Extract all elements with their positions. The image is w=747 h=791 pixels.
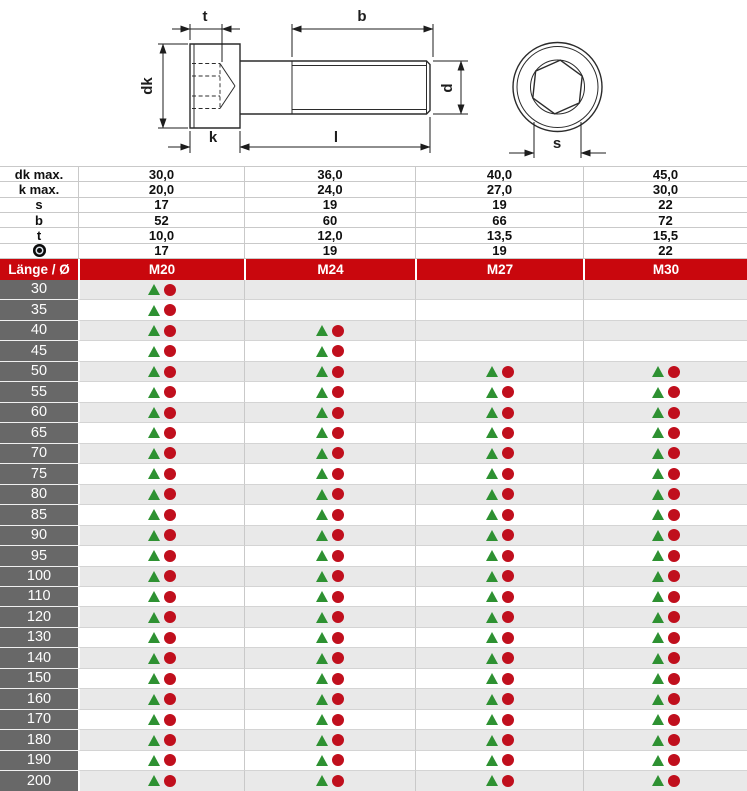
dot-marker-icon xyxy=(668,509,680,521)
length-label: 55 xyxy=(0,382,78,402)
availability-cell xyxy=(244,607,415,627)
triangle-marker-icon xyxy=(148,735,160,746)
catalog-page: t b dk k l d s dk max.30,036,040,045,0k … xyxy=(0,0,747,791)
availability-cell xyxy=(244,464,415,484)
triangle-marker-icon xyxy=(486,407,498,418)
triangle-marker-icon xyxy=(316,366,328,377)
availability-cell xyxy=(244,444,415,464)
triangle-marker-icon xyxy=(148,694,160,705)
availability-cell xyxy=(78,587,244,607)
dot-marker-icon xyxy=(502,591,514,603)
availability-cell xyxy=(415,628,583,648)
dot-marker-icon xyxy=(668,754,680,766)
availability-cell xyxy=(583,771,747,791)
dot-marker-icon xyxy=(332,673,344,685)
triangle-marker-icon xyxy=(486,468,498,479)
spec-value: 30,0 xyxy=(583,182,747,196)
availability-cell xyxy=(583,710,747,730)
triangle-marker-icon xyxy=(652,448,664,459)
availability-markers xyxy=(652,468,680,480)
triangle-marker-icon xyxy=(652,612,664,623)
triangle-marker-icon xyxy=(486,632,498,643)
table-row: 110 xyxy=(0,587,747,607)
spec-value: 15,5 xyxy=(583,228,747,242)
availability-cell xyxy=(78,730,244,750)
availability-cell xyxy=(244,628,415,648)
availability-markers xyxy=(316,488,344,500)
triangle-marker-icon xyxy=(652,632,664,643)
availability-cell xyxy=(78,526,244,546)
availability-cell xyxy=(244,710,415,730)
spec-table: dk max.30,036,040,045,0k max.20,024,027,… xyxy=(0,166,747,259)
dot-marker-icon xyxy=(332,529,344,541)
dot-marker-icon xyxy=(668,570,680,582)
triangle-marker-icon xyxy=(148,571,160,582)
triangle-marker-icon xyxy=(148,407,160,418)
triangle-marker-icon xyxy=(148,305,160,316)
dot-marker-icon xyxy=(164,754,176,766)
triangle-marker-icon xyxy=(486,550,498,561)
dot-marker-icon xyxy=(502,734,514,746)
dot-marker-icon xyxy=(332,345,344,357)
length-label: 85 xyxy=(0,505,78,525)
dot-marker-icon xyxy=(164,345,176,357)
triangle-marker-icon xyxy=(486,366,498,377)
availability-cell xyxy=(244,321,415,341)
availability-cell xyxy=(583,607,747,627)
spec-value: 60 xyxy=(244,213,415,227)
size-column-header: M24 xyxy=(244,259,415,280)
availability-markers xyxy=(316,734,344,746)
availability-markers xyxy=(486,570,514,582)
availability-markers xyxy=(148,734,176,746)
spec-row: k max.20,024,027,030,0 xyxy=(0,181,747,196)
triangle-marker-icon xyxy=(148,489,160,500)
availability-cell xyxy=(583,464,747,484)
table-row: 75 xyxy=(0,464,747,484)
availability-cell xyxy=(244,485,415,505)
dot-marker-icon xyxy=(502,673,514,685)
table-row: 60 xyxy=(0,403,747,423)
triangle-marker-icon xyxy=(316,673,328,684)
availability-markers xyxy=(486,611,514,623)
spec-row: s17191922 xyxy=(0,197,747,212)
availability-markers xyxy=(652,611,680,623)
availability-cell xyxy=(78,648,244,668)
spec-value: 52 xyxy=(78,213,244,227)
length-label: 80 xyxy=(0,485,78,505)
availability-cell xyxy=(78,280,244,300)
triangle-marker-icon xyxy=(486,448,498,459)
availability-cell xyxy=(583,587,747,607)
triangle-marker-icon xyxy=(652,775,664,786)
dot-marker-icon xyxy=(332,427,344,439)
table-row: 65 xyxy=(0,423,747,443)
triangle-marker-icon xyxy=(652,366,664,377)
availability-cell xyxy=(78,382,244,402)
availability-markers xyxy=(316,386,344,398)
triangle-marker-icon xyxy=(652,387,664,398)
availability-cell xyxy=(583,628,747,648)
dot-marker-icon xyxy=(502,386,514,398)
length-label: 30 xyxy=(0,280,78,300)
availability-markers xyxy=(148,673,176,685)
spec-value: 24,0 xyxy=(244,182,415,196)
triangle-marker-icon xyxy=(316,325,328,336)
triangle-marker-icon xyxy=(486,755,498,766)
availability-cell xyxy=(244,300,415,320)
triangle-marker-icon xyxy=(652,735,664,746)
availability-cell xyxy=(583,648,747,668)
availability-markers xyxy=(316,775,344,787)
availability-cell xyxy=(78,341,244,361)
availability-cell xyxy=(78,300,244,320)
availability-markers xyxy=(316,529,344,541)
availability-cell xyxy=(244,751,415,771)
table-row: 140 xyxy=(0,648,747,668)
availability-cell xyxy=(415,464,583,484)
availability-markers xyxy=(316,427,344,439)
spec-row: dk max.30,036,040,045,0 xyxy=(0,166,747,181)
size-column-header: M20 xyxy=(78,259,244,280)
triangle-marker-icon xyxy=(316,407,328,418)
availability-cell xyxy=(78,485,244,505)
triangle-marker-icon xyxy=(486,612,498,623)
dot-marker-icon xyxy=(332,325,344,337)
availability-cell xyxy=(244,423,415,443)
availability-markers xyxy=(148,775,176,787)
availability-cell xyxy=(415,751,583,771)
triangle-marker-icon xyxy=(486,775,498,786)
dot-marker-icon xyxy=(332,734,344,746)
spec-row-label xyxy=(0,244,78,258)
dot-marker-icon xyxy=(668,427,680,439)
triangle-marker-icon xyxy=(652,468,664,479)
dot-marker-icon xyxy=(164,673,176,685)
availability-cell xyxy=(244,587,415,607)
availability-cell xyxy=(415,648,583,668)
availability-cell xyxy=(244,382,415,402)
length-label: 50 xyxy=(0,362,78,382)
availability-markers xyxy=(486,652,514,664)
availability-cell xyxy=(78,751,244,771)
table-row: 90 xyxy=(0,526,747,546)
availability-markers xyxy=(148,447,176,459)
triangle-marker-icon xyxy=(652,427,664,438)
availability-markers xyxy=(486,734,514,746)
table-row: 160 xyxy=(0,689,747,709)
triangle-marker-icon xyxy=(652,550,664,561)
availability-cell xyxy=(78,771,244,791)
spec-value: 45,0 xyxy=(583,167,747,181)
availability-markers xyxy=(652,550,680,562)
triangle-marker-icon xyxy=(652,694,664,705)
size-column-header: M30 xyxy=(583,259,747,280)
dot-marker-icon xyxy=(502,550,514,562)
availability-cell xyxy=(415,526,583,546)
dot-marker-icon xyxy=(502,407,514,419)
length-label: 190 xyxy=(0,751,78,771)
table-row: 170 xyxy=(0,710,747,730)
triangle-marker-icon xyxy=(486,427,498,438)
triangle-marker-icon xyxy=(316,427,328,438)
availability-cell xyxy=(244,689,415,709)
triangle-marker-icon xyxy=(486,735,498,746)
availability-cell xyxy=(78,505,244,525)
length-label: 110 xyxy=(0,587,78,607)
length-label: 70 xyxy=(0,444,78,464)
dim-label-k: k xyxy=(209,129,218,146)
availability-markers xyxy=(652,386,680,398)
end-view xyxy=(513,43,602,132)
availability-cell xyxy=(244,280,415,300)
availability-markers xyxy=(148,550,176,562)
triangle-marker-icon xyxy=(652,509,664,520)
table-row: 120 xyxy=(0,607,747,627)
dot-marker-icon xyxy=(332,468,344,480)
dot-marker-icon xyxy=(332,754,344,766)
availability-cell xyxy=(583,751,747,771)
dot-marker-icon xyxy=(332,591,344,603)
dot-marker-icon xyxy=(668,734,680,746)
dot-marker-icon xyxy=(502,611,514,623)
availability-markers xyxy=(148,591,176,603)
triangle-marker-icon xyxy=(148,591,160,602)
availability-markers xyxy=(486,550,514,562)
length-label: 140 xyxy=(0,648,78,668)
availability-cell xyxy=(583,526,747,546)
dot-marker-icon xyxy=(164,529,176,541)
dot-marker-icon xyxy=(668,407,680,419)
availability-cell xyxy=(78,546,244,566)
table-row: 95 xyxy=(0,546,747,566)
availability-cell xyxy=(78,689,244,709)
spec-value: 36,0 xyxy=(244,167,415,181)
availability-markers xyxy=(148,304,176,316)
dot-marker-icon xyxy=(332,611,344,623)
availability-markers xyxy=(148,386,176,398)
length-label: 60 xyxy=(0,403,78,423)
length-label: 120 xyxy=(0,607,78,627)
length-label: 75 xyxy=(0,464,78,484)
availability-cell xyxy=(583,321,747,341)
dot-marker-icon xyxy=(164,570,176,582)
availability-markers xyxy=(316,591,344,603)
dot-marker-icon xyxy=(502,652,514,664)
availability-markers xyxy=(148,509,176,521)
dot-marker-icon xyxy=(332,550,344,562)
availability-markers xyxy=(148,693,176,705)
availability-markers xyxy=(148,284,176,296)
triangle-marker-icon xyxy=(316,387,328,398)
dim-label-b: b xyxy=(357,8,366,25)
triangle-marker-icon xyxy=(486,714,498,725)
availability-cell xyxy=(415,546,583,566)
triangle-marker-icon xyxy=(652,571,664,582)
availability-markers xyxy=(486,673,514,685)
spec-value: 19 xyxy=(244,198,415,212)
table-row: 45 xyxy=(0,341,747,361)
availability-cell xyxy=(583,341,747,361)
availability-cell xyxy=(244,771,415,791)
availability-markers xyxy=(148,754,176,766)
availability-cell xyxy=(415,771,583,791)
triangle-marker-icon xyxy=(316,448,328,459)
triangle-marker-icon xyxy=(316,775,328,786)
table-row: 150 xyxy=(0,669,747,689)
dot-marker-icon xyxy=(164,652,176,664)
availability-markers xyxy=(652,529,680,541)
spec-value: 20,0 xyxy=(78,182,244,196)
availability-markers xyxy=(148,529,176,541)
spec-row-label: t xyxy=(0,228,78,242)
size-column-header: M27 xyxy=(415,259,583,280)
triangle-marker-icon xyxy=(652,673,664,684)
dot-marker-icon xyxy=(502,488,514,500)
dot-marker-icon xyxy=(332,366,344,378)
triangle-marker-icon xyxy=(316,735,328,746)
spec-value: 17 xyxy=(78,244,244,258)
dot-marker-icon xyxy=(668,611,680,623)
triangle-marker-icon xyxy=(148,714,160,725)
dot-marker-icon xyxy=(164,693,176,705)
dot-marker-icon xyxy=(502,468,514,480)
triangle-marker-icon xyxy=(316,694,328,705)
table-row: 130 xyxy=(0,628,747,648)
dot-marker-icon xyxy=(668,673,680,685)
triangle-marker-icon xyxy=(148,550,160,561)
availability-cell xyxy=(415,587,583,607)
availability-cell xyxy=(244,648,415,668)
spec-value: 19 xyxy=(415,198,583,212)
availability-markers xyxy=(486,488,514,500)
dot-marker-icon xyxy=(164,468,176,480)
availability-cell xyxy=(244,341,415,361)
availability-markers xyxy=(148,611,176,623)
dot-marker-icon xyxy=(668,714,680,726)
length-label: 95 xyxy=(0,546,78,566)
triangle-marker-icon xyxy=(148,346,160,357)
availability-cell xyxy=(78,362,244,382)
triangle-marker-icon xyxy=(148,530,160,541)
triangle-marker-icon xyxy=(652,714,664,725)
dot-marker-icon xyxy=(332,570,344,582)
availability-markers xyxy=(652,509,680,521)
availability-markers xyxy=(316,632,344,644)
dot-marker-icon xyxy=(164,366,176,378)
availability-cell xyxy=(78,444,244,464)
triangle-marker-icon xyxy=(652,530,664,541)
dot-marker-icon xyxy=(668,591,680,603)
availability-markers xyxy=(316,652,344,664)
triangle-marker-icon xyxy=(652,407,664,418)
availability-cell xyxy=(583,485,747,505)
availability-markers xyxy=(148,632,176,644)
dot-marker-icon xyxy=(332,447,344,459)
dot-marker-icon xyxy=(332,652,344,664)
availability-cell xyxy=(415,403,583,423)
availability-cell xyxy=(78,464,244,484)
dot-marker-icon xyxy=(164,591,176,603)
availability-markers xyxy=(652,570,680,582)
dim-label-t: t xyxy=(203,8,208,25)
availability-cell xyxy=(583,730,747,750)
length-label: 65 xyxy=(0,423,78,443)
dot-marker-icon xyxy=(332,714,344,726)
dot-marker-icon xyxy=(502,570,514,582)
availability-cell xyxy=(78,628,244,648)
spec-value: 22 xyxy=(583,198,747,212)
triangle-marker-icon xyxy=(148,755,160,766)
dim-label-s: s xyxy=(553,135,561,152)
dim-label-l: l xyxy=(334,129,338,146)
triangle-marker-icon xyxy=(486,530,498,541)
availability-cell xyxy=(415,362,583,382)
spec-value: 10,0 xyxy=(78,228,244,242)
spec-value: 13,5 xyxy=(415,228,583,242)
dot-marker-icon xyxy=(502,509,514,521)
triangle-marker-icon xyxy=(316,468,328,479)
availability-markers xyxy=(652,591,680,603)
triangle-marker-icon xyxy=(148,427,160,438)
triangle-marker-icon xyxy=(486,387,498,398)
availability-markers xyxy=(316,714,344,726)
dim-label-d: d xyxy=(439,83,456,92)
availability-cell xyxy=(415,444,583,464)
triangle-marker-icon xyxy=(486,694,498,705)
availability-cell xyxy=(415,300,583,320)
availability-markers xyxy=(486,632,514,644)
availability-markers xyxy=(148,652,176,664)
dot-marker-icon xyxy=(668,775,680,787)
dot-marker-icon xyxy=(668,529,680,541)
triangle-marker-icon xyxy=(316,632,328,643)
spec-row-label: k max. xyxy=(0,182,78,196)
length-label: 130 xyxy=(0,628,78,648)
dot-marker-icon xyxy=(164,632,176,644)
availability-markers xyxy=(316,366,344,378)
socket-symbol-icon xyxy=(33,244,46,257)
triangle-marker-icon xyxy=(652,591,664,602)
dot-marker-icon xyxy=(164,734,176,746)
dot-marker-icon xyxy=(164,611,176,623)
dot-marker-icon xyxy=(502,714,514,726)
availability-cell xyxy=(583,403,747,423)
availability-markers xyxy=(486,366,514,378)
table-row: 190 xyxy=(0,751,747,771)
availability-cell xyxy=(583,669,747,689)
dot-marker-icon xyxy=(668,550,680,562)
table-row: 70 xyxy=(0,444,747,464)
availability-markers xyxy=(486,775,514,787)
spec-row: b52606672 xyxy=(0,212,747,227)
triangle-marker-icon xyxy=(148,612,160,623)
spec-row-label: dk max. xyxy=(0,167,78,181)
dot-marker-icon xyxy=(164,407,176,419)
dot-marker-icon xyxy=(668,632,680,644)
spec-value: 27,0 xyxy=(415,182,583,196)
triangle-marker-icon xyxy=(148,366,160,377)
dot-marker-icon xyxy=(164,509,176,521)
triangle-marker-icon xyxy=(148,284,160,295)
dot-marker-icon xyxy=(164,284,176,296)
dot-marker-icon xyxy=(668,386,680,398)
dot-marker-icon xyxy=(164,325,176,337)
triangle-marker-icon xyxy=(316,591,328,602)
availability-markers xyxy=(652,734,680,746)
availability-markers xyxy=(316,693,344,705)
availability-markers xyxy=(316,407,344,419)
